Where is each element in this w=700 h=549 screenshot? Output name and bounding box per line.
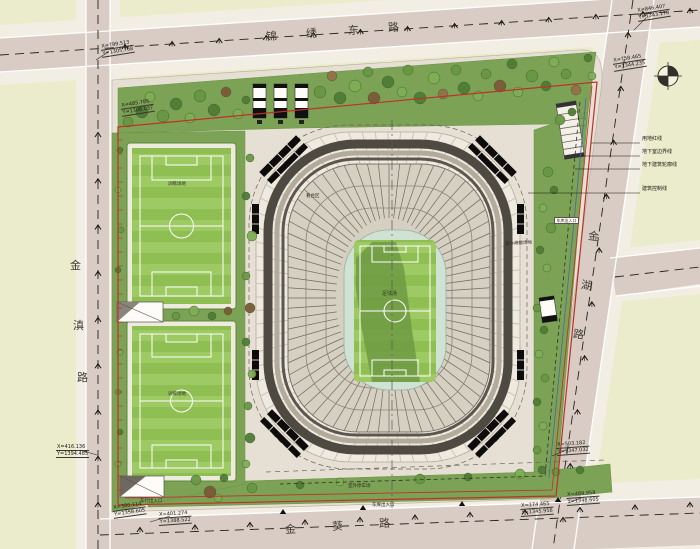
training-field-b: [127, 321, 236, 481]
garage-ramp-southwest: [120, 476, 164, 497]
site-plan-drawing: 锦 绣 东 路 金 滇 路 金 湖 路 金 葵 路 用地红线 地下室边界线 地下…: [0, 0, 700, 549]
field-service-building: [117, 302, 163, 322]
site-plan-svg: [0, 0, 700, 549]
garage-ramps-north: [253, 84, 308, 124]
garage-ramp-east: [539, 296, 557, 323]
training-field-a: [127, 143, 236, 309]
